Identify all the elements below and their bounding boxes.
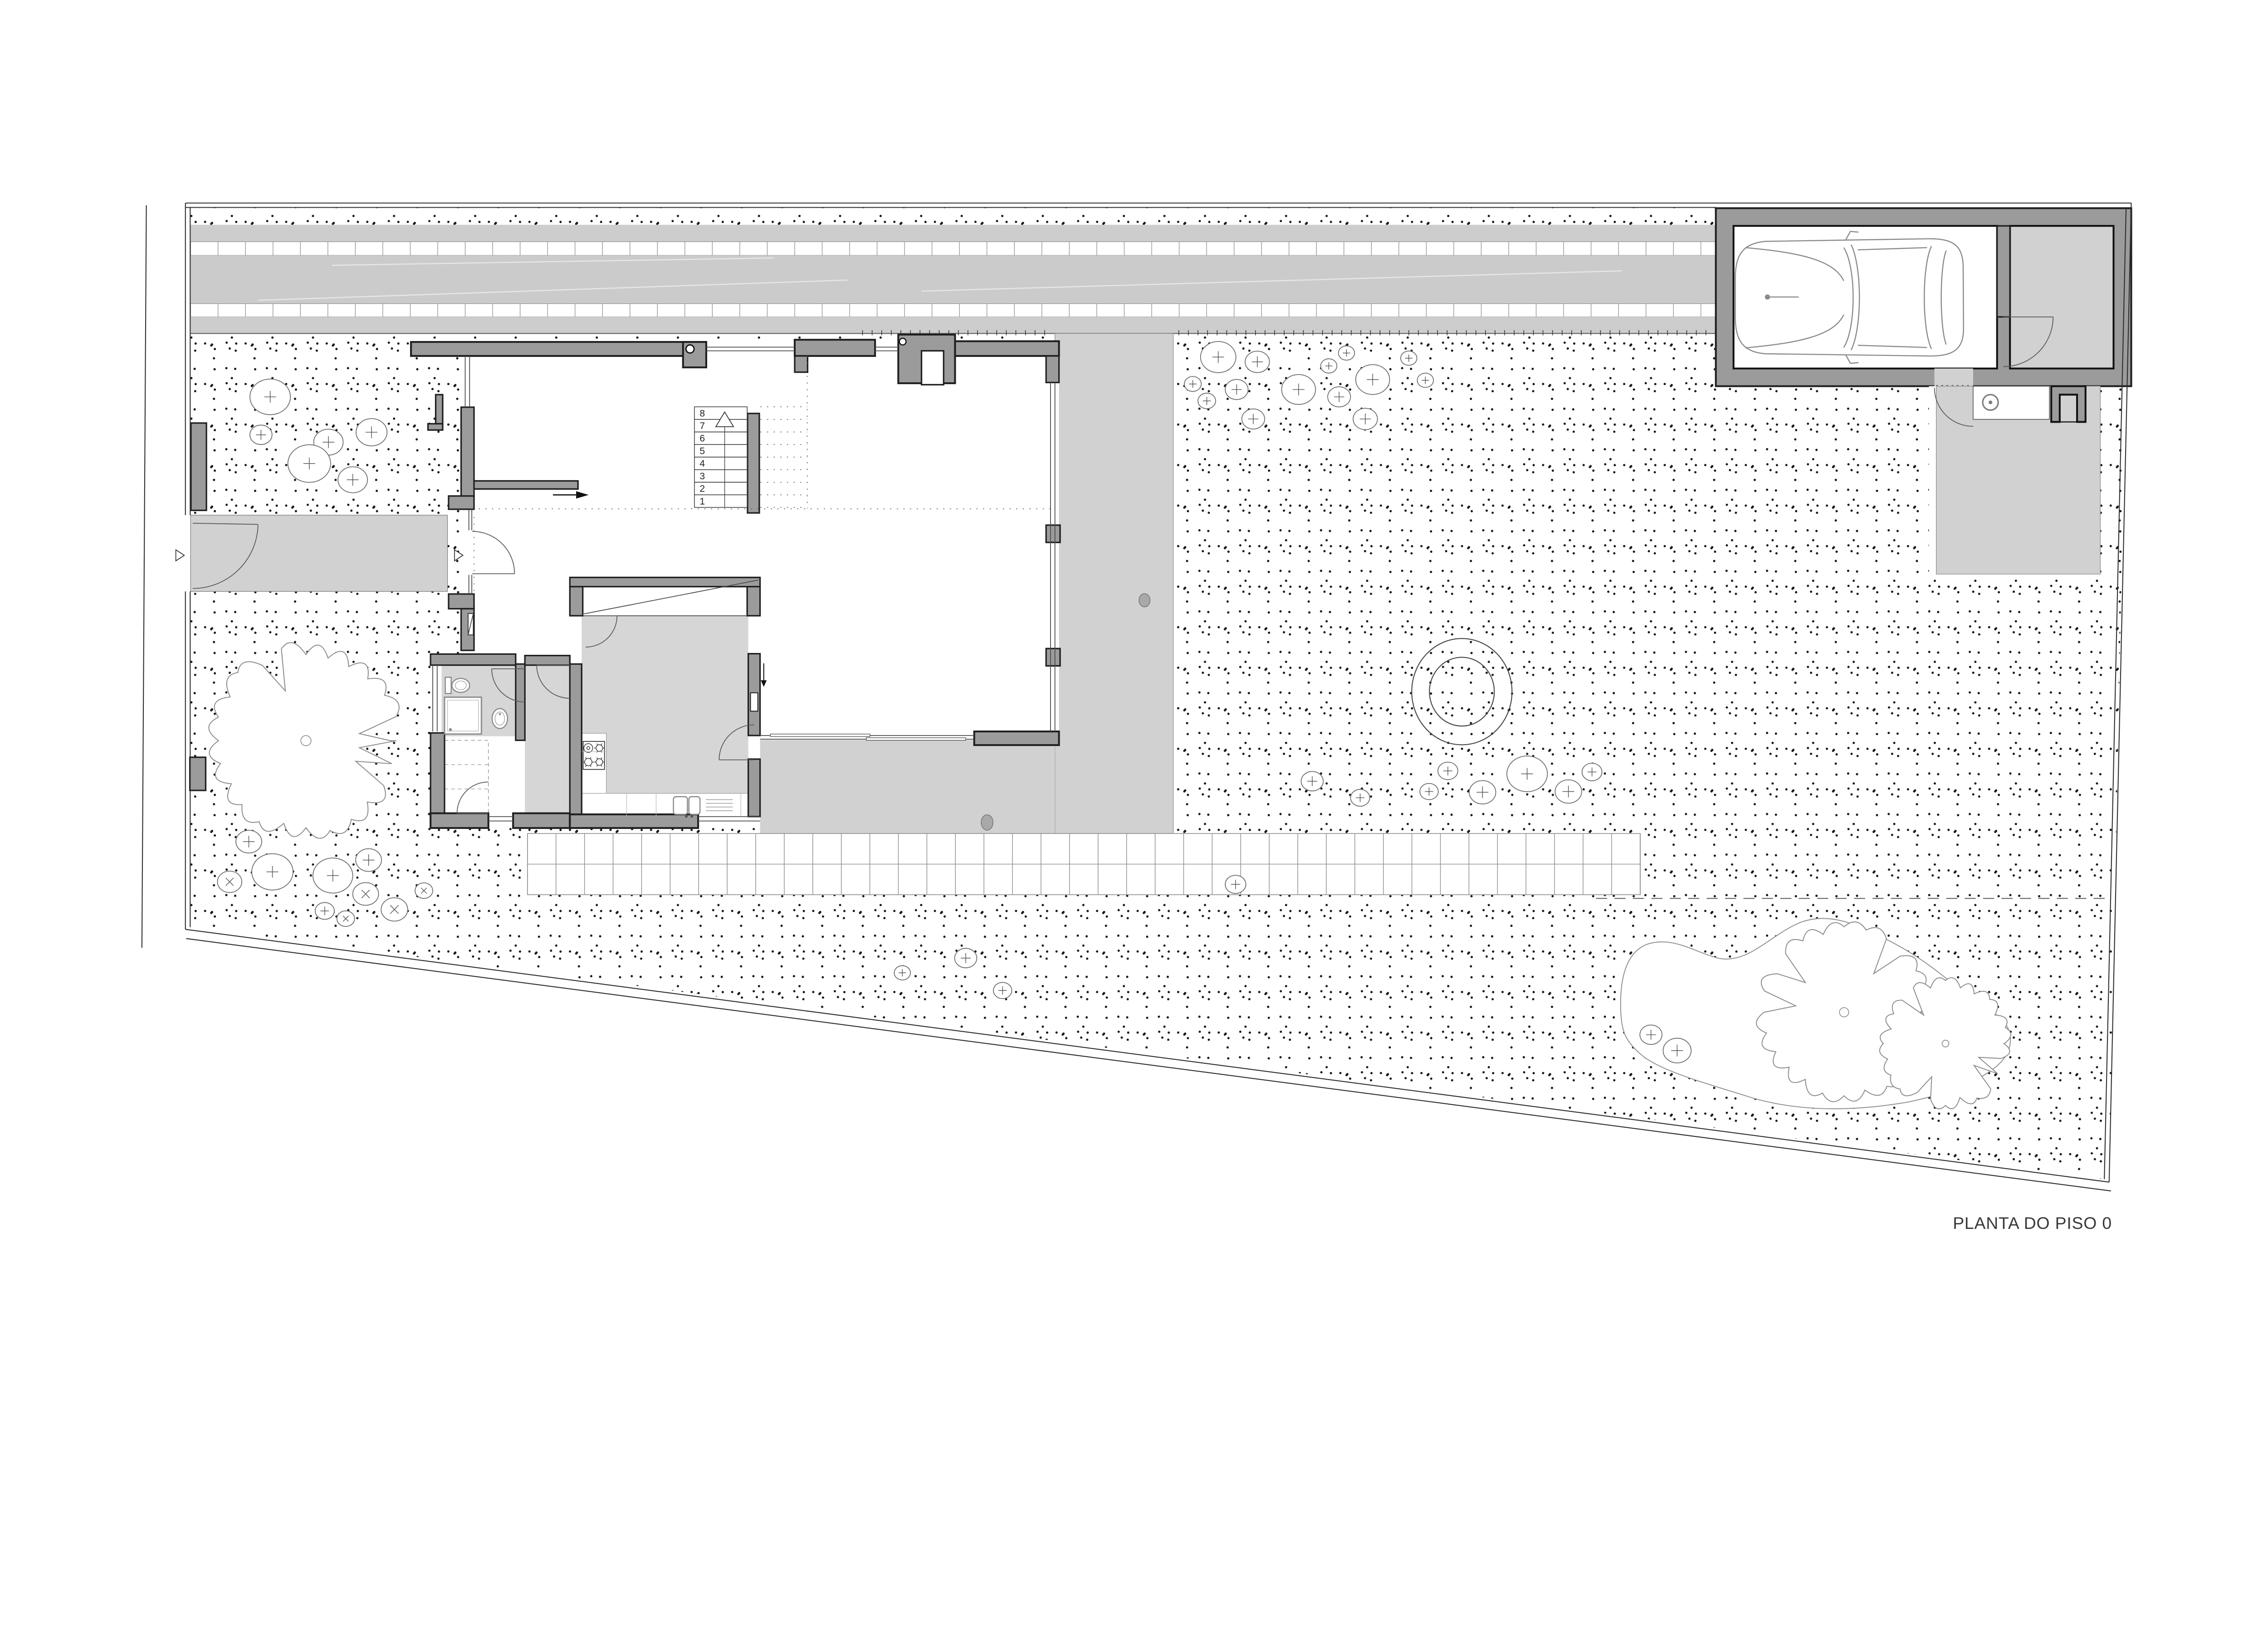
- garden-tree-icon: [1420, 784, 1438, 800]
- boundary-pier: [190, 757, 206, 790]
- garden-tree-icon: [250, 425, 272, 444]
- roadway: [191, 255, 1716, 303]
- paver-band-upper: [191, 242, 1716, 255]
- garden-tree-icon: [1281, 375, 1315, 404]
- bollard-center-dot: [1989, 400, 1992, 404]
- paver-band-lower: [191, 304, 1716, 317]
- garage-rear-opening: [1935, 369, 1973, 386]
- garden-tree-icon: [415, 883, 433, 898]
- garden-tree-icon: [1469, 780, 1496, 804]
- southeast-wall: [974, 731, 1059, 745]
- garden-tree-icon: [1328, 387, 1350, 407]
- facade-column: [1046, 525, 1060, 542]
- garden-tree-icon: [1242, 409, 1265, 429]
- garden-tree-icon: [1507, 756, 1547, 792]
- garden-tree-icon: [217, 871, 242, 892]
- garden-tree-icon: [1353, 408, 1378, 429]
- road-edge-line: [142, 205, 147, 948]
- gate-pillar: [191, 423, 206, 511]
- round-column: [686, 345, 694, 353]
- round-column: [899, 338, 906, 345]
- stair-step-number: 3: [699, 471, 705, 482]
- stair-step-number: 6: [699, 434, 705, 444]
- garden-tree-icon: [1417, 373, 1433, 387]
- garden-tree-icon: [1350, 789, 1369, 806]
- garden-tree-icon: [1184, 376, 1201, 391]
- garden-tree-icon: [1245, 351, 1270, 372]
- paver-path: [528, 833, 1640, 895]
- garden-tree-icon: [1555, 780, 1582, 803]
- stair-step-number: 4: [699, 458, 705, 469]
- garden-tree-icon: [313, 858, 353, 893]
- stair-step-number: 7: [699, 421, 705, 431]
- garden-tree-icon: [1663, 1038, 1691, 1063]
- garden-tree-icon: [894, 966, 910, 980]
- stair-step-number: 2: [699, 484, 705, 494]
- garden-tree-icon: [1225, 875, 1246, 893]
- garden-tree-icon: [252, 854, 293, 890]
- garden-tree-icon: [1321, 359, 1337, 373]
- kitchen-sink-icon: [674, 797, 688, 814]
- garden-tree-icon: [1225, 380, 1248, 400]
- floor-plan-canvas: 87654321 PLANTA DO PISO 0: [0, 0, 2268, 1338]
- garden-tree-icon: [250, 379, 290, 415]
- garden-tree-icon: [337, 911, 355, 926]
- toilet-icon: [445, 677, 451, 694]
- stair-step-number: 8: [699, 408, 705, 419]
- garden-tree-icon: [338, 467, 367, 492]
- stair-wall: [748, 414, 759, 513]
- east-patio: [1055, 333, 1173, 833]
- hall-floor: [525, 665, 570, 814]
- gate-arrow-icon: [176, 550, 185, 560]
- kitchen-floor: [582, 616, 748, 794]
- stair-step-number: 1: [699, 496, 705, 507]
- garage-courtyard: [2010, 226, 2113, 368]
- side-path-strip: [1929, 386, 1936, 574]
- garden-tree-icon: [1438, 762, 1458, 780]
- garden-tree-icon: [353, 882, 379, 905]
- garden-tree-icon: [1201, 341, 1236, 373]
- garden-tree-icon: [955, 948, 977, 968]
- garden-tree-icon: [236, 830, 262, 853]
- garden-tree-icon: [356, 419, 387, 446]
- garden-tree-icon: [993, 982, 1012, 999]
- drawing-sheet: 87654321 PLANTA DO PISO 0: [0, 0, 2268, 1338]
- vestibule-wall: [474, 481, 578, 489]
- shrub-icon: [981, 815, 993, 830]
- garden-tree-icon: [1356, 365, 1390, 395]
- garden-tree-icon: [1339, 346, 1355, 360]
- garden-tree-icon: [1401, 351, 1417, 365]
- sidewalk-lower: [191, 317, 1716, 334]
- garden-tree-icon: [1582, 763, 1602, 781]
- kitchen-counter-south: [582, 794, 760, 817]
- entrance-walkway: [191, 515, 447, 591]
- plan-title: PLANTA DO PISO 0: [1953, 1213, 2112, 1233]
- garden-tree-icon: [1640, 1025, 1662, 1044]
- south-terrace: [760, 740, 1055, 833]
- sidewalk-upper: [191, 225, 1716, 242]
- garden-tree-icon: [288, 445, 331, 482]
- garden-tree-icon: [356, 849, 381, 872]
- south-wall: [570, 814, 698, 828]
- garage-divider-wall: [1997, 226, 2010, 317]
- garden-tree-icon: [1198, 393, 1216, 409]
- road-strip: [191, 225, 1716, 336]
- garden-tree-icon: [315, 902, 334, 919]
- closet-dashed: [445, 741, 489, 814]
- garden-tree-icon: [1301, 771, 1324, 791]
- shrub-icon: [1139, 594, 1150, 607]
- facade-column: [1046, 648, 1060, 666]
- north-wall: [411, 342, 706, 356]
- garden-tree-icon: [381, 898, 408, 921]
- bathroom-wall: [430, 654, 516, 665]
- staircase: 87654321: [694, 407, 747, 507]
- stair-step-number: 5: [699, 446, 705, 456]
